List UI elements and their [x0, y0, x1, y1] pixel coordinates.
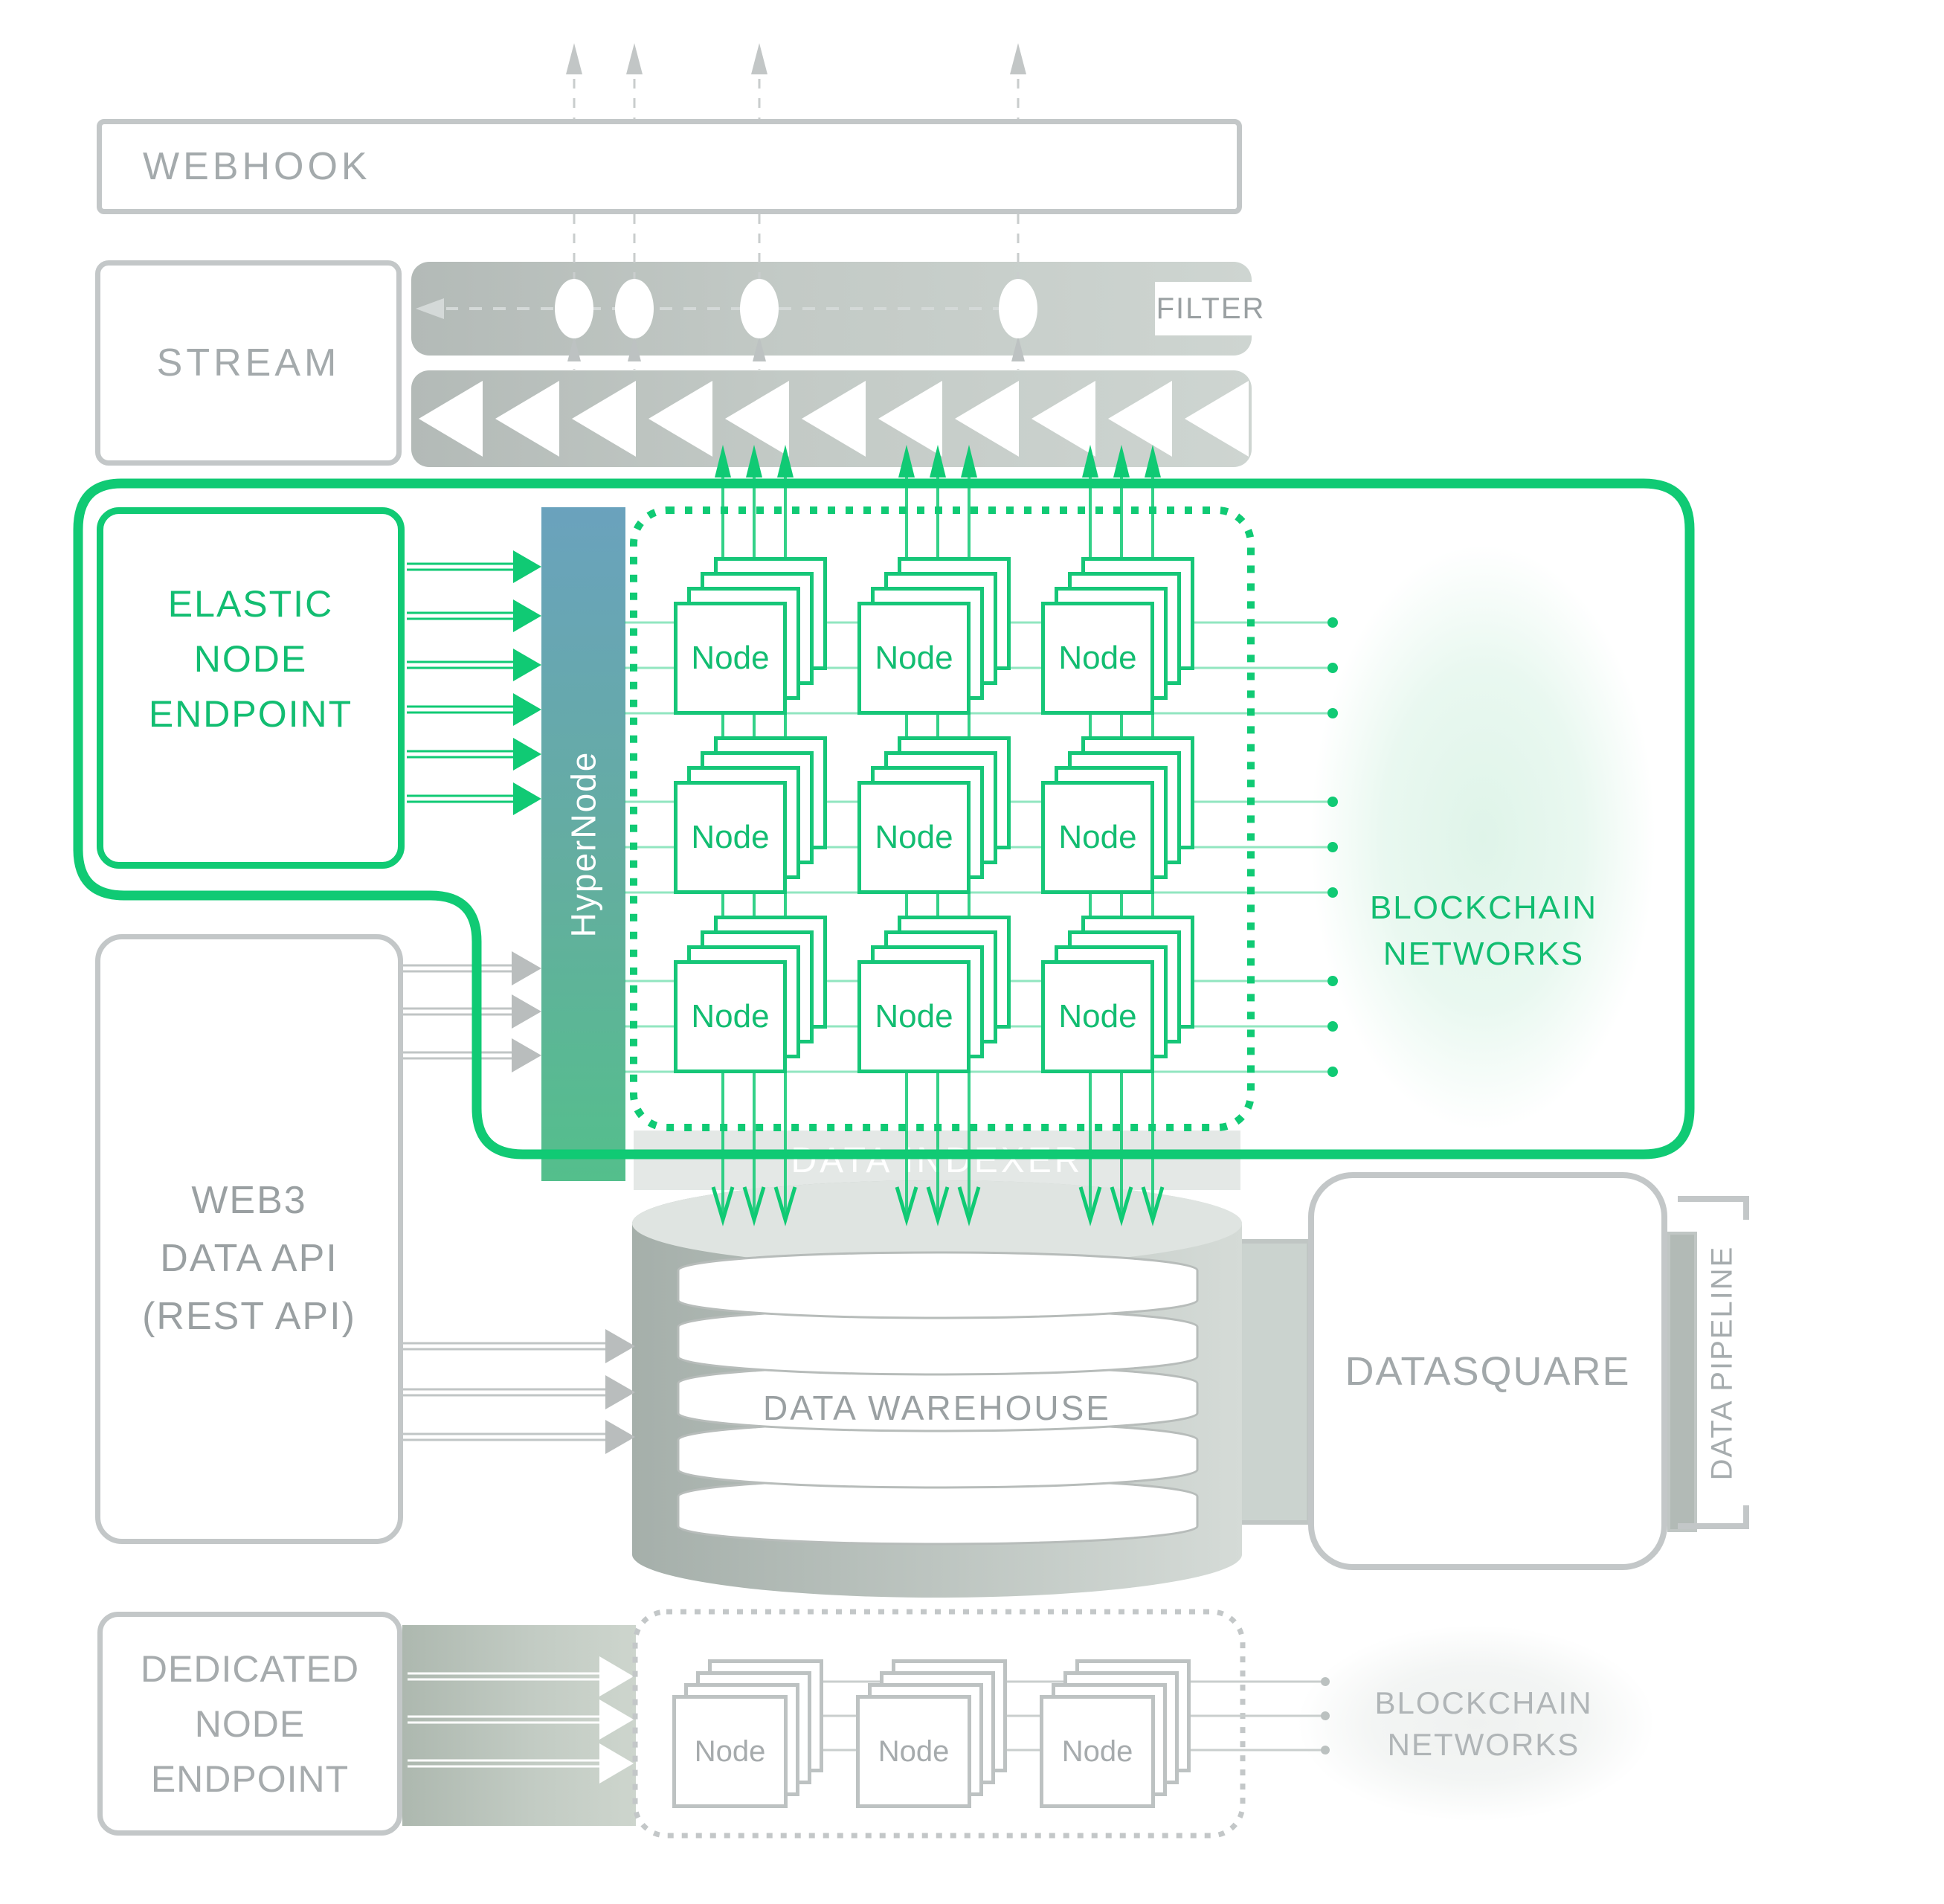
arrow-shaft — [403, 1342, 607, 1351]
web3-warehouse-arrow — [403, 1420, 635, 1454]
node-stack: Node — [856, 1695, 971, 1808]
node-label: Node — [1045, 605, 1150, 711]
right-arrowhead-icon — [599, 1699, 634, 1740]
up-arrowhead-icon — [1010, 43, 1026, 74]
filter-dot-icon — [999, 279, 1037, 338]
node-stack: Node — [857, 602, 971, 715]
down-arrowhead-icon — [897, 1187, 916, 1220]
web3-hypernode-arrow — [403, 994, 541, 1029]
node-front-square: Node — [856, 1695, 971, 1808]
node-front-square: Node — [674, 960, 787, 1073]
webhook-label: WEBHOOK — [143, 144, 371, 189]
node-label: Node — [1043, 1699, 1151, 1804]
elastic-flow-arrow — [407, 599, 541, 632]
arrow-shaft — [408, 1760, 602, 1768]
blockchain-networks-top-label: BLOCKCHAIN NETWORKS — [1309, 885, 1658, 977]
filter-bar — [411, 262, 1252, 356]
node-stack: Node — [672, 1695, 788, 1808]
down-arrowhead-icon — [1143, 1187, 1162, 1220]
right-arrowhead-icon — [605, 1420, 635, 1454]
warehouse-disk — [678, 1309, 1197, 1374]
down-arrowhead-icon — [713, 1187, 733, 1220]
node-front-square: Node — [1040, 1695, 1155, 1808]
left-triangle-icon — [648, 381, 712, 457]
blockchain-networks-bottom-line2: NETWORKS — [1309, 1724, 1658, 1766]
node-front-square: Node — [672, 1695, 788, 1808]
cylinder-top — [632, 1180, 1242, 1267]
left-triangle-icon — [1185, 381, 1249, 457]
left-triangle-icon — [955, 381, 1019, 457]
web3-hypernode-arrow — [403, 951, 541, 985]
node-front-square: Node — [857, 781, 971, 894]
node-label: Node — [861, 785, 967, 890]
left-triangle-icon — [1108, 381, 1172, 457]
dedicated-line2: NODE — [141, 1696, 359, 1752]
arrow-shaft — [408, 1673, 602, 1681]
data-warehouse-label: DATA WAREHOUSE — [763, 1389, 1111, 1427]
dedicated-flow-arrow — [408, 1699, 634, 1740]
arrow-shaft — [407, 795, 515, 803]
web3-line1: WEB3 — [142, 1171, 356, 1229]
node-stack: Node — [857, 781, 971, 894]
dedicated-line3: ENDPOINT — [141, 1752, 359, 1807]
blockchain-networks-top-line2: NETWORKS — [1309, 931, 1658, 977]
right-arrowhead-icon — [512, 994, 541, 1029]
web3-line2: DATA API — [142, 1229, 356, 1287]
arrow-shaft — [408, 1716, 602, 1724]
left-triangle-icon — [802, 381, 866, 457]
node-stack: Node — [674, 960, 787, 1073]
node-front-square: Node — [857, 602, 971, 715]
left-triangle-icon — [572, 381, 636, 457]
elastic-flow-arrow — [407, 649, 541, 681]
data-pipeline-label: DATA PIPELINE — [1705, 1245, 1739, 1480]
elastic-flow-arrow — [407, 782, 541, 815]
blockchain-networks-bottom-label: BLOCKCHAIN NETWORKS — [1309, 1682, 1658, 1766]
web3-hypernode-arrow — [403, 1038, 541, 1072]
right-arrowhead-icon — [513, 782, 541, 815]
node-stack: Node — [1041, 781, 1154, 894]
node-stack: Node — [1041, 602, 1154, 715]
up-arrowhead-icon — [626, 43, 643, 74]
warehouse-disk — [678, 1422, 1197, 1487]
filter-dot-icon — [615, 279, 654, 338]
blockchain-networks-glow-top — [1301, 530, 1664, 1145]
node-label: Node — [1045, 964, 1150, 1070]
web3-line3: (REST API) — [142, 1287, 356, 1345]
stream-label: STREAM — [157, 341, 341, 385]
filter-label-box: FILTER — [1155, 282, 1267, 335]
elastic-flow-arrow — [407, 738, 541, 771]
data-warehouse-label-wrap: DATA WAREHOUSE — [669, 1388, 1205, 1428]
arrow-shaft — [407, 706, 515, 714]
filter-dot-icon — [555, 279, 593, 338]
right-arrowhead-icon — [513, 738, 541, 771]
right-arrowhead-icon — [605, 1329, 635, 1363]
node-stack: Node — [857, 960, 971, 1073]
right-arrowhead-icon — [513, 693, 541, 726]
warehouse-disk — [678, 1252, 1197, 1318]
right-arrowhead-icon — [599, 1743, 634, 1784]
node-label: Node — [861, 964, 967, 1070]
node-front-square: Node — [674, 602, 787, 715]
data-indexer-bar: DATA INDEXER — [634, 1130, 1240, 1190]
node-label: Node — [677, 605, 783, 711]
right-arrowhead-icon — [512, 951, 541, 985]
up-arrowhead-icon — [751, 43, 767, 74]
hypernode-bar: HyperNode — [541, 507, 625, 1181]
webhook-box: WEBHOOK — [97, 119, 1242, 214]
node-front-square: Node — [674, 781, 787, 894]
warehouse-datasquare-connector — [1237, 1239, 1311, 1525]
node-front-square: Node — [1041, 960, 1154, 1073]
node-label: Node — [677, 964, 783, 1070]
down-arrowhead-icon — [928, 1187, 947, 1220]
filter-dot-icon — [740, 279, 779, 338]
left-triangle-icon — [725, 381, 789, 457]
arrow-shaft — [407, 612, 515, 620]
elastic-endpoint-line3: ENDPOINT — [149, 686, 353, 742]
datasquare-label: DATASQUARE — [1345, 1348, 1630, 1395]
right-arrowhead-icon — [512, 1038, 541, 1072]
diagram-canvas: HyperNode DATA INDEXER DATA PIPELINE DAT… — [0, 0, 1944, 1904]
down-arrowhead-icon — [1081, 1187, 1100, 1220]
arrow-shaft — [403, 1389, 607, 1397]
up-arrowhead-icon — [566, 43, 582, 74]
stream-flow-bar — [411, 370, 1252, 467]
node-front-square: Node — [1041, 781, 1154, 894]
node-front-square: Node — [857, 960, 971, 1073]
datasquare-box: DATASQUARE — [1308, 1172, 1667, 1570]
elastic-endpoint-line1: ELASTIC — [149, 576, 353, 631]
arrow-shaft — [407, 563, 515, 571]
elastic-endpoint-line2: NODE — [149, 631, 353, 686]
dedicated-flow-arrow — [408, 1743, 634, 1784]
node-front-square: Node — [1041, 602, 1154, 715]
left-triangle-icon — [878, 381, 942, 457]
arrow-shaft — [407, 750, 515, 759]
left-triangle-icon — [419, 381, 483, 457]
dedicated-node-endpoint-box: DEDICATED NODE ENDPOINT — [97, 1612, 402, 1836]
elastic-node-endpoint-box: ELASTIC NODE ENDPOINT — [97, 507, 405, 869]
down-arrowhead-icon — [959, 1187, 979, 1220]
web3-data-api-box: WEB3 DATA API (REST API) — [95, 934, 403, 1544]
arrow-shaft — [403, 965, 513, 973]
blockchain-networks-bottom-line1: BLOCKCHAIN — [1309, 1682, 1658, 1724]
left-triangle-icon — [495, 381, 559, 457]
stream-box: STREAM — [95, 260, 402, 466]
elastic-flow-arrow — [407, 693, 541, 726]
node-label: Node — [676, 1699, 784, 1804]
left-triangle-icon — [1031, 381, 1095, 457]
warehouse-disk — [678, 1479, 1197, 1544]
right-arrowhead-icon — [513, 599, 541, 632]
node-stack: Node — [674, 781, 787, 894]
filter-label: FILTER — [1156, 292, 1266, 326]
node-label: Node — [1045, 785, 1150, 890]
dedicated-flow-arrow — [408, 1656, 634, 1696]
data-indexer-label: DATA INDEXER — [791, 1140, 1084, 1181]
node-stack: Node — [1041, 960, 1154, 1073]
arrow-shaft — [403, 1433, 607, 1441]
web3-warehouse-arrow — [403, 1375, 635, 1409]
down-arrowhead-icon — [776, 1187, 795, 1220]
blockchain-networks-top-line1: BLOCKCHAIN — [1309, 885, 1658, 931]
right-arrowhead-icon — [605, 1375, 635, 1409]
node-label: Node — [860, 1699, 968, 1804]
right-arrowhead-icon — [513, 550, 541, 583]
elastic-flow-arrow — [407, 550, 541, 583]
arrow-shaft — [407, 661, 515, 669]
right-arrowhead-icon — [513, 649, 541, 681]
down-arrowhead-icon — [744, 1187, 764, 1220]
node-stack: Node — [674, 602, 787, 715]
web3-warehouse-arrow — [403, 1329, 635, 1363]
down-arrowhead-icon — [1112, 1187, 1131, 1220]
node-label: Node — [861, 605, 967, 711]
hypernode-label: HyperNode — [564, 751, 604, 938]
arrow-shaft — [403, 1052, 513, 1060]
right-arrowhead-icon — [599, 1656, 634, 1696]
node-label: Node — [677, 785, 783, 890]
dedicated-line1: DEDICATED — [141, 1641, 359, 1696]
node-stack: Node — [1040, 1695, 1155, 1808]
arrow-shaft — [403, 1008, 513, 1016]
